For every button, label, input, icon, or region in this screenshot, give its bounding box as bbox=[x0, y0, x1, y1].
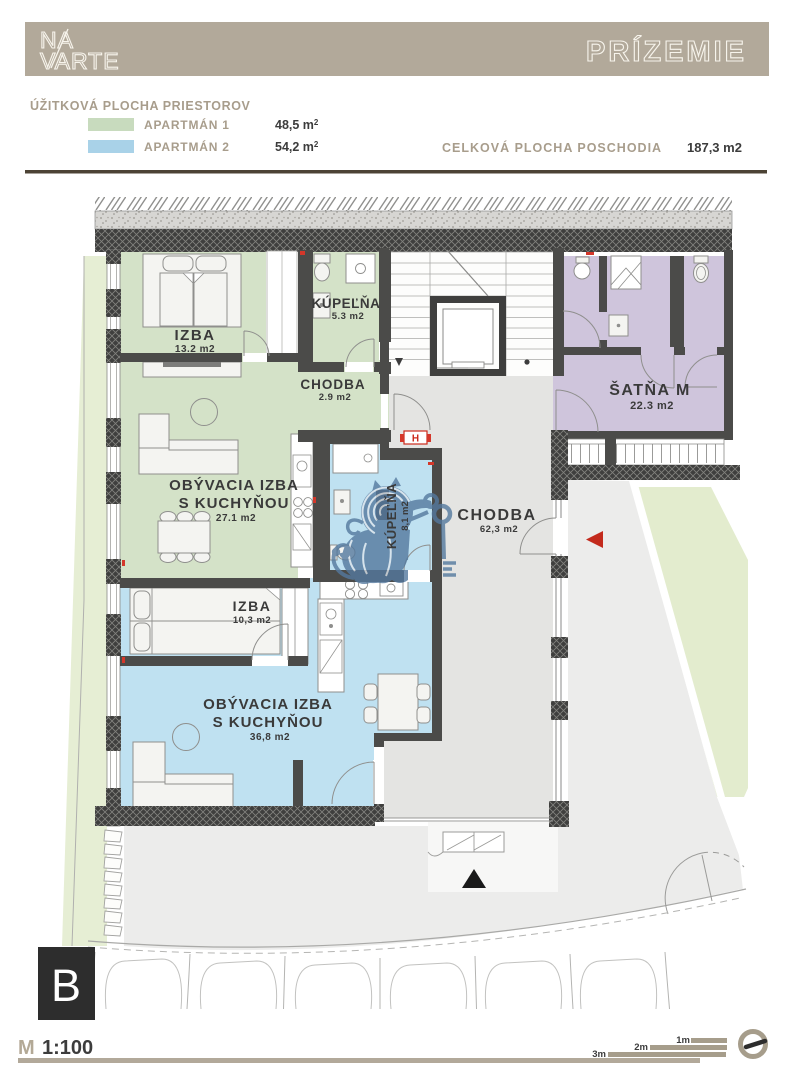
svg-text:APARTMÁN 1: APARTMÁN 1 bbox=[144, 117, 230, 132]
svg-text:13.2 m2: 13.2 m2 bbox=[175, 344, 215, 355]
svg-text:27.1 m2: 27.1 m2 bbox=[216, 513, 256, 524]
svg-text:H: H bbox=[412, 434, 419, 445]
svg-text:22.3 m2: 22.3 m2 bbox=[630, 400, 674, 412]
svg-text:54,2 m2: 54,2 m2 bbox=[275, 140, 319, 154]
svg-text:2.9 m2: 2.9 m2 bbox=[319, 392, 352, 403]
svg-text:2m: 2m bbox=[634, 1042, 648, 1053]
svg-text:36,8 m2: 36,8 m2 bbox=[250, 732, 290, 743]
svg-text:KÚPEĽŇA: KÚPEĽŇA bbox=[312, 296, 381, 311]
svg-text:IZBA: IZBA bbox=[175, 327, 216, 344]
svg-text:M: M bbox=[18, 1037, 35, 1059]
svg-text:CHODBA: CHODBA bbox=[457, 507, 536, 524]
svg-text:S KUCHYŇOU: S KUCHYŇOU bbox=[213, 713, 324, 731]
svg-text:PRÍZEMIE: PRÍZEMIE bbox=[586, 34, 747, 68]
svg-text:8,1 m2: 8,1 m2 bbox=[400, 501, 411, 531]
svg-text:S KUCHYŇOU: S KUCHYŇOU bbox=[179, 494, 290, 512]
svg-text:ŠATŇA M: ŠATŇA M bbox=[609, 380, 691, 399]
svg-text:VARTE: VARTE bbox=[40, 48, 120, 74]
svg-text:187,3 m2: 187,3 m2 bbox=[687, 140, 742, 155]
svg-text:IZBA: IZBA bbox=[233, 598, 272, 614]
svg-text:10,3 m2: 10,3 m2 bbox=[233, 615, 271, 626]
svg-text:CELKOVÁ PLOCHA POSCHODIA: CELKOVÁ PLOCHA POSCHODIA bbox=[442, 140, 662, 155]
svg-text:ÚŽITKOVÁ PLOCHA PRIESTOROV: ÚŽITKOVÁ PLOCHA PRIESTOROV bbox=[30, 98, 251, 113]
svg-text:KÚPEĽŇA: KÚPEĽŇA bbox=[384, 483, 399, 549]
svg-text:OBÝVACIA IZBA: OBÝVACIA IZBA bbox=[169, 476, 299, 494]
svg-text:CHODBA: CHODBA bbox=[300, 377, 365, 392]
svg-text:OBÝVACIA IZBA: OBÝVACIA IZBA bbox=[203, 695, 333, 713]
svg-text:5.3 m2: 5.3 m2 bbox=[332, 311, 365, 322]
svg-text:62,3 m2: 62,3 m2 bbox=[480, 524, 518, 535]
svg-text:1:100: 1:100 bbox=[42, 1037, 93, 1059]
svg-text:48,5 m2: 48,5 m2 bbox=[275, 118, 319, 132]
svg-text:APARTMÁN 2: APARTMÁN 2 bbox=[144, 139, 230, 154]
svg-text:B: B bbox=[51, 960, 81, 1011]
svg-text:3m: 3m bbox=[592, 1049, 606, 1060]
svg-text:1m: 1m bbox=[676, 1035, 690, 1046]
